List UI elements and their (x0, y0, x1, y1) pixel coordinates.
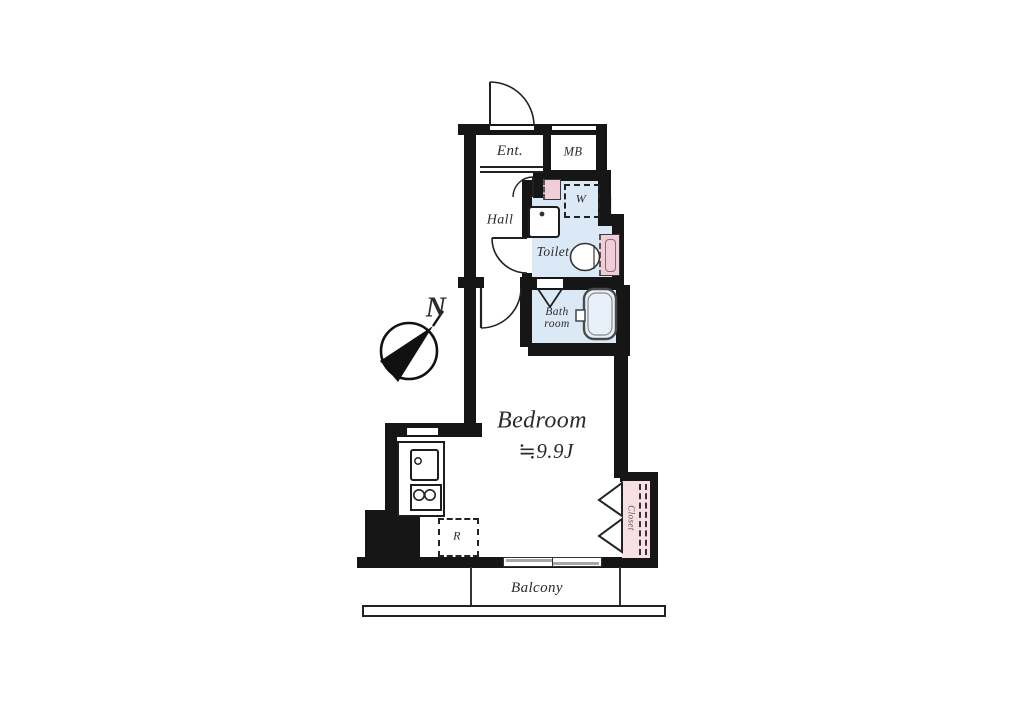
bathroom-label: Bath room (544, 306, 569, 330)
bathroom-label-line1: Bath (544, 306, 569, 318)
toilet-door-arc (492, 238, 527, 273)
hall-threshold (480, 166, 543, 173)
closet-bifold-door (599, 519, 622, 552)
washer-label: W (576, 193, 586, 206)
closet-bifold-door (599, 483, 622, 516)
entrance-label: Ent. (497, 144, 523, 160)
bathroom-label-line2: room (544, 318, 569, 330)
kitchen-stove (410, 484, 442, 511)
balcony-side-line (470, 567, 472, 607)
wall (616, 285, 630, 347)
hall-label: Hall (487, 214, 514, 229)
toilet-label: Toilet (537, 245, 570, 259)
floor-plan: Closet W R (0, 0, 1022, 702)
closet-label: Closet (626, 505, 635, 530)
balcony-edge (362, 605, 666, 617)
bedroom-area-label: ≒9.9J (518, 440, 573, 462)
kitchen-sink (410, 449, 439, 481)
wall (614, 343, 628, 478)
refrigerator-label: R (453, 530, 461, 543)
bath-door-slot (537, 279, 563, 288)
wall (458, 277, 484, 288)
pillar (365, 510, 420, 560)
entrance-threshold (490, 126, 534, 130)
wall (385, 423, 397, 513)
balcony-side-line (619, 567, 621, 607)
balcony-label: Balcony (511, 581, 563, 597)
wall (543, 135, 551, 172)
kitchen-wall-slot (407, 428, 438, 435)
washbasin (528, 206, 560, 238)
bedroom-door-arc (481, 288, 521, 328)
meter-box-label: MB (564, 145, 583, 158)
laundry-fixture (543, 179, 561, 200)
water-heater-fixture (599, 234, 620, 276)
north-label: N (426, 293, 447, 322)
closet-rod (645, 484, 647, 555)
entrance-door-arc (490, 82, 534, 126)
window-sliding (503, 557, 602, 567)
bathroom-floor (528, 288, 618, 345)
mb-window-slot (552, 126, 596, 130)
closet-rod (639, 484, 641, 555)
bedroom-label: Bedroom (497, 408, 587, 433)
